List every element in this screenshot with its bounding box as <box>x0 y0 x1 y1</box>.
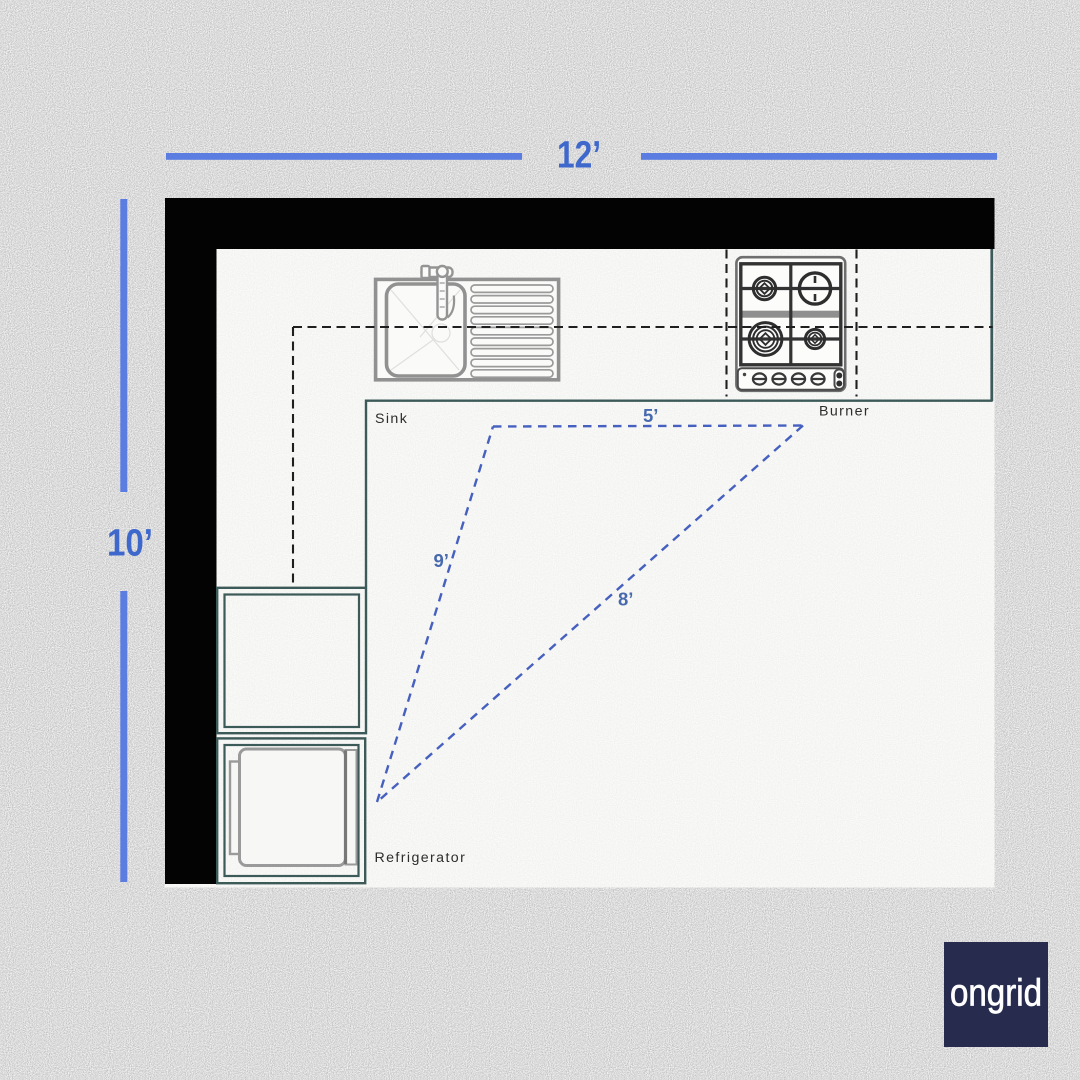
svg-text:Sink: Sink <box>375 411 408 427</box>
svg-text:ongrid: ongrid <box>950 973 1042 1015</box>
svg-text:9’: 9’ <box>434 550 449 571</box>
svg-text:5’: 5’ <box>643 405 658 426</box>
svg-text:12’: 12’ <box>557 135 601 177</box>
svg-text:Refrigerator: Refrigerator <box>375 850 467 866</box>
svg-text:8’: 8’ <box>618 589 633 610</box>
svg-text:10’: 10’ <box>107 523 153 565</box>
svg-text:Burner: Burner <box>819 404 870 420</box>
